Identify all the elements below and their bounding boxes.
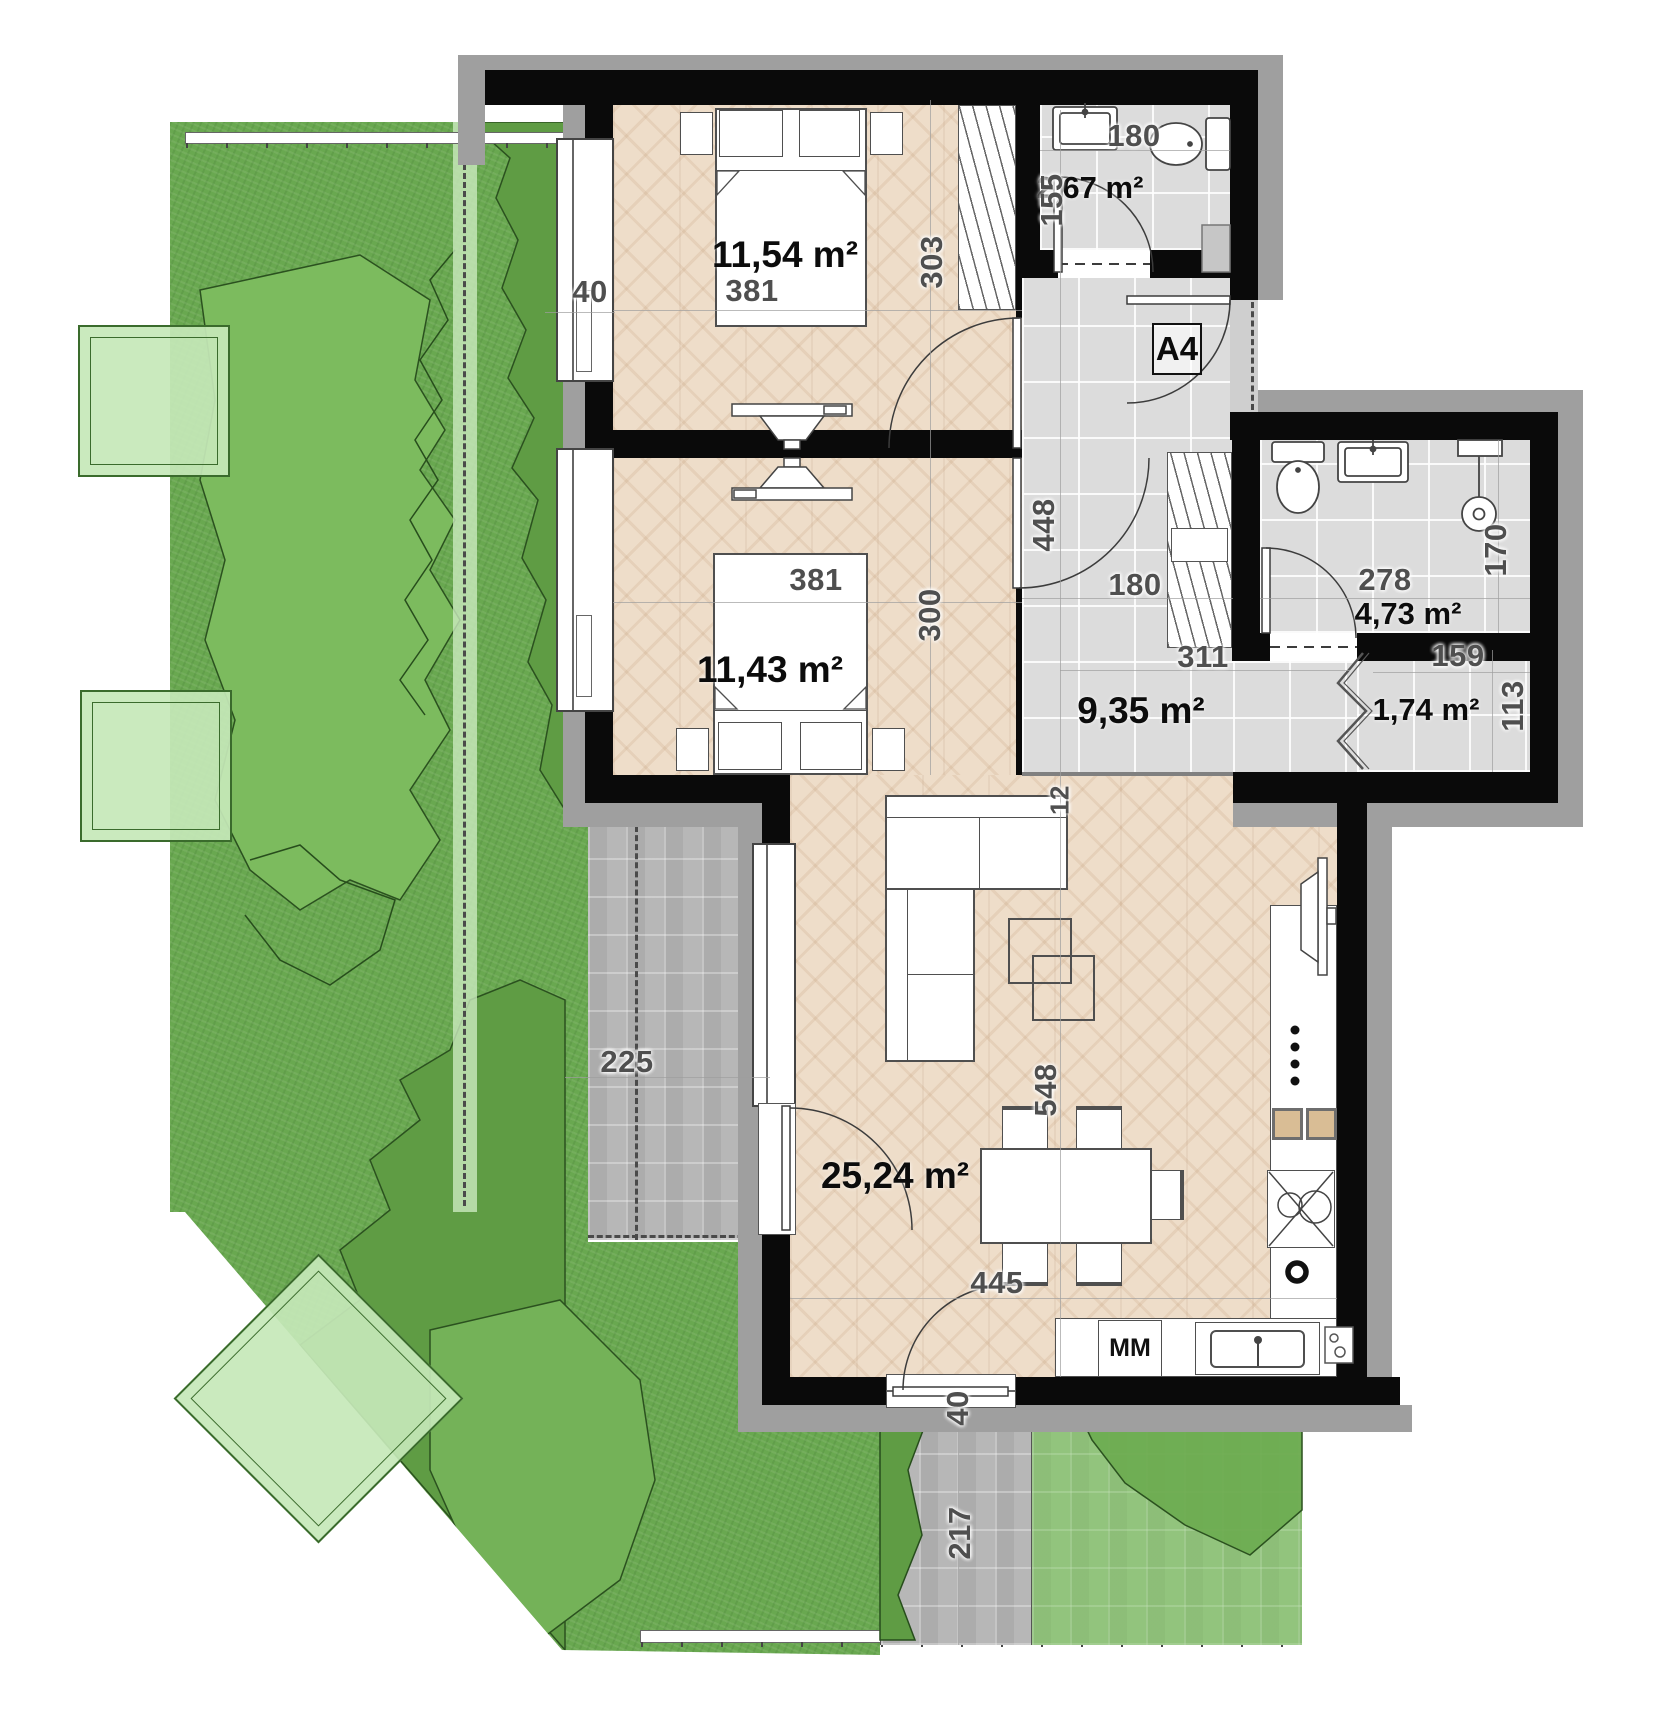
dim-hall-width: 180 <box>1108 567 1161 603</box>
hob-burners-icon <box>1291 1026 1300 1086</box>
unit-label-box: A4 <box>1152 323 1202 375</box>
kitchen-corner-fixture <box>1325 1327 1353 1363</box>
guide-line <box>613 602 1022 603</box>
guide-line <box>930 100 931 775</box>
kitchen-o-symbol <box>1288 1263 1306 1281</box>
dim-hall-step: 12 <box>1045 785 1076 815</box>
dim-bed2-width: 381 <box>789 562 842 598</box>
dim-bed2-height: 300 <box>912 588 948 641</box>
dim-bath-width: 278 <box>1358 562 1411 598</box>
room-area-bathroom: 4,73 m² <box>1355 596 1462 632</box>
room-area-living: 25,24 m² <box>821 1155 969 1197</box>
washing-machine-drum-icon <box>1269 1172 1333 1246</box>
wc-duct <box>1202 225 1230 272</box>
dim-living-door: 40 <box>940 1390 976 1425</box>
room-area-bedroom2: 11,43 m² <box>697 649 843 691</box>
guide-line <box>545 312 615 313</box>
dim-closet-width: 159 <box>1431 638 1484 674</box>
door-bedroom1 <box>889 318 1021 448</box>
room-area-closet: 1,74 m² <box>1373 692 1480 728</box>
bathroom-sink-icon <box>1338 440 1408 482</box>
dim-path-width: 217 <box>942 1506 978 1559</box>
room-area-bedroom1: 11,54 m² <box>712 234 858 276</box>
dim-wc-height: 155 <box>1034 173 1070 226</box>
dim-bed1-height: 303 <box>914 235 950 288</box>
wc-toilet-icon <box>1150 118 1230 170</box>
door-terrace-south <box>893 1285 1008 1396</box>
room-area-hall: 9,35 m² <box>1077 690 1205 732</box>
kitchen-faucet-icon <box>1255 1337 1261 1366</box>
guide-line <box>613 310 1022 311</box>
dim-bath-height: 170 <box>1478 523 1514 576</box>
dim-hall-height: 448 <box>1026 498 1062 551</box>
bathroom-toilet-icon <box>1272 442 1324 513</box>
dim-bed1-width: 381 <box>725 273 778 309</box>
guide-line <box>565 1077 770 1078</box>
dim-living-width: 445 <box>970 1265 1023 1301</box>
floor-plan-apartment-a4: MM <box>0 0 1663 1732</box>
dim-bed1-window: 40 <box>572 274 607 310</box>
dim-closet-height: 113 <box>1495 680 1531 732</box>
guide-line <box>790 1298 1337 1299</box>
unit-label: A4 <box>1156 330 1198 368</box>
guide-line <box>1060 110 1061 1377</box>
dim-wc-width: 180 <box>1107 118 1160 154</box>
shower-icon <box>1458 440 1502 531</box>
dim-living-height: 548 <box>1028 1063 1064 1116</box>
tv-living-icon <box>1301 858 1336 975</box>
dim-hall-length: 311 <box>1177 639 1229 675</box>
guide-line <box>1492 650 1493 772</box>
tv-bedroom1-icon <box>732 404 852 449</box>
dim-terrace-width: 225 <box>600 1044 653 1080</box>
tv-bedroom2-icon <box>732 458 852 500</box>
